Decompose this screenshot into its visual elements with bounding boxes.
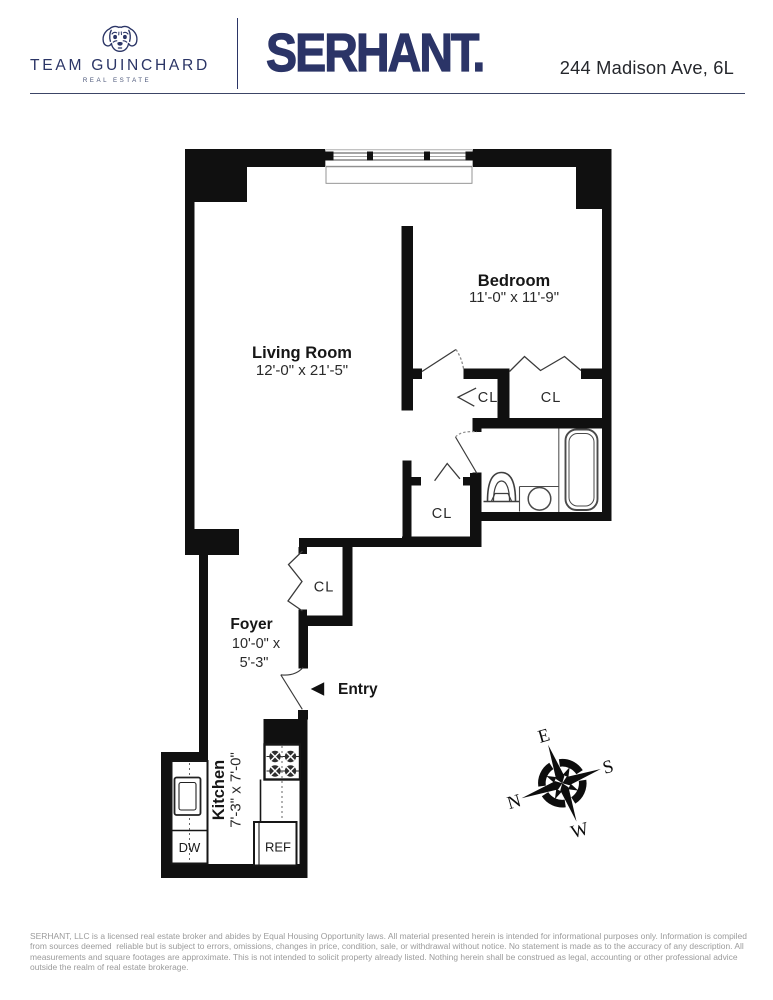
svg-text:CL: CL xyxy=(432,506,453,522)
svg-text:12'-0" x 21'-5": 12'-0" x 21'-5" xyxy=(256,362,348,379)
svg-text:REF: REF xyxy=(265,840,291,855)
svg-text:Bedroom: Bedroom xyxy=(478,272,550,290)
svg-text:11'-0" x 11'-9": 11'-0" x 11'-9" xyxy=(469,289,559,306)
svg-text:Living Room: Living Room xyxy=(252,344,352,362)
svg-text:10'-0" x: 10'-0" x xyxy=(232,636,281,652)
svg-text:E: E xyxy=(536,725,552,747)
svg-text:DW: DW xyxy=(179,840,201,855)
svg-text:N: N xyxy=(505,791,523,814)
svg-text:Entry: Entry xyxy=(338,681,378,698)
svg-text:W: W xyxy=(569,819,592,843)
svg-text:Kitchen: Kitchen xyxy=(210,760,228,821)
svg-text:7'-3" x 7'-0": 7'-3" x 7'-0" xyxy=(228,752,245,828)
svg-text:5'-3": 5'-3" xyxy=(240,655,269,671)
svg-text:CL: CL xyxy=(478,390,499,406)
svg-text:CL: CL xyxy=(541,390,562,406)
svg-text:CL: CL xyxy=(314,580,335,596)
svg-text:S: S xyxy=(601,757,616,779)
svg-text:Foyer: Foyer xyxy=(230,616,272,633)
